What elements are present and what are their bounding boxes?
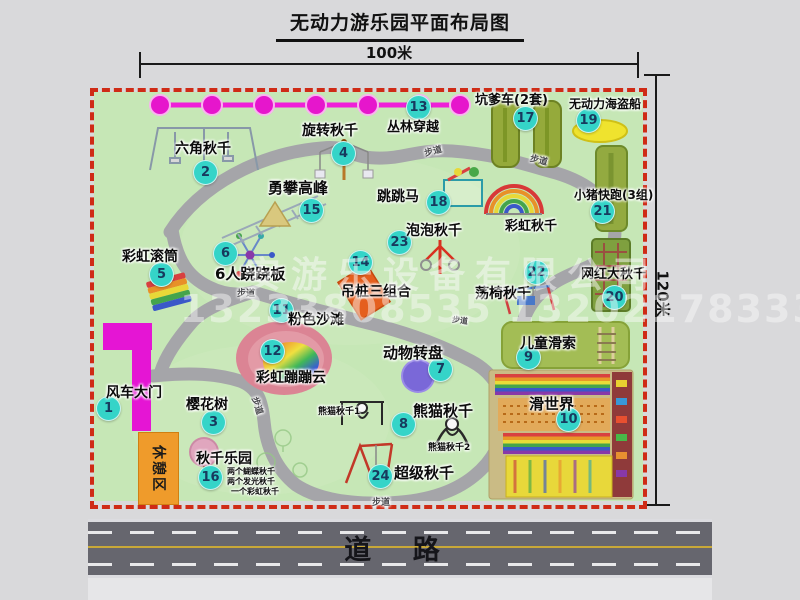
road: 道 路 [88,519,712,578]
rest-area-label: 休憩区 [149,445,169,493]
rest-area: 休憩区 [138,432,179,505]
playground-layout-map: 无动力游乐园平面布局图 100米 120米 [0,0,800,600]
dimension-width-label: 100米 [366,42,412,63]
road-label: 道 路 [344,527,455,566]
page-title: 无动力游乐园平面布局图 [276,8,524,42]
dimension-height-label: 120米 [653,264,674,324]
